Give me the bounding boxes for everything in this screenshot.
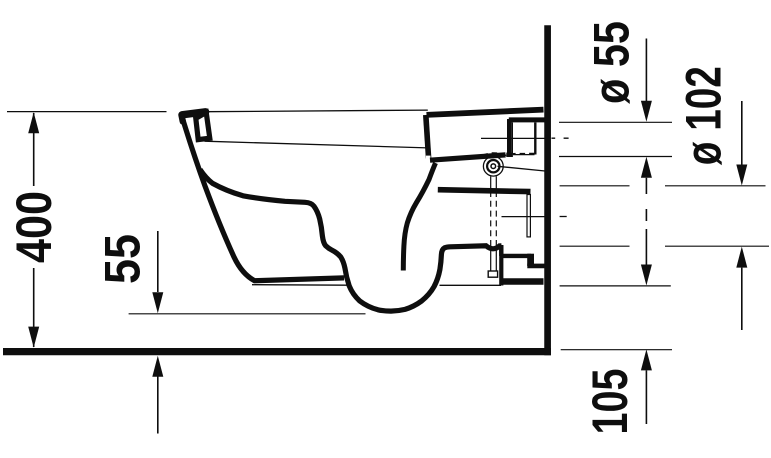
svg-text:55: 55 bbox=[95, 234, 151, 284]
svg-text:105: 105 bbox=[582, 369, 638, 435]
svg-text:ø 55: ø 55 bbox=[584, 21, 640, 104]
svg-text:ø 102: ø 102 bbox=[676, 66, 732, 165]
svg-text:400: 400 bbox=[6, 191, 62, 263]
